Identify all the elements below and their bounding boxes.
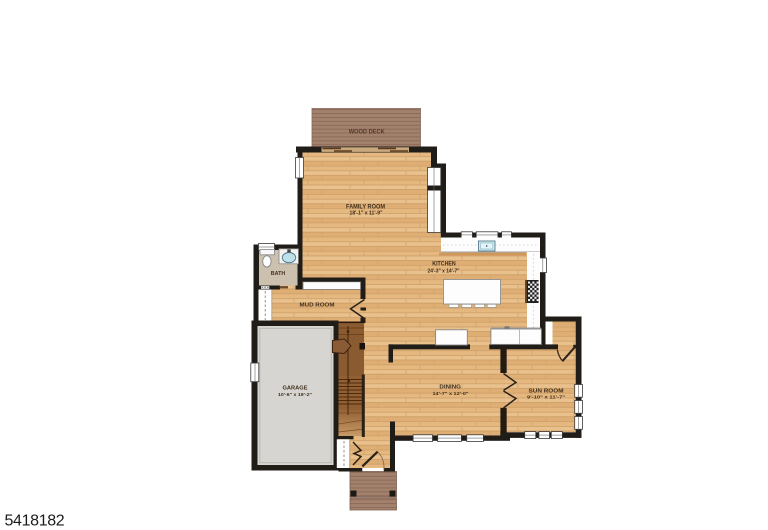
svg-text:WOOD DECK: WOOD DECK bbox=[349, 130, 386, 136]
svg-text:24'-3" x 14'-7": 24'-3" x 14'-7" bbox=[428, 268, 461, 274]
svg-text:10'-6" x 19'-2": 10'-6" x 19'-2" bbox=[278, 392, 312, 398]
svg-text:GARAGE: GARAGE bbox=[283, 386, 308, 392]
svg-text:SUN ROOM: SUN ROOM bbox=[529, 388, 564, 394]
svg-text:14'-7" x 12'-0": 14'-7" x 12'-0" bbox=[433, 391, 469, 397]
svg-text:DINING: DINING bbox=[439, 384, 461, 390]
svg-text:KITCHEN: KITCHEN bbox=[432, 262, 456, 268]
svg-text:5418182: 5418182 bbox=[5, 512, 65, 529]
svg-text:MUD ROOM: MUD ROOM bbox=[300, 302, 335, 308]
svg-text:18'-1" x 11'-9": 18'-1" x 11'-9" bbox=[350, 210, 384, 216]
svg-text:BATH: BATH bbox=[271, 271, 286, 277]
svg-text:9'-10" x 11'-7": 9'-10" x 11'-7" bbox=[527, 395, 565, 401]
